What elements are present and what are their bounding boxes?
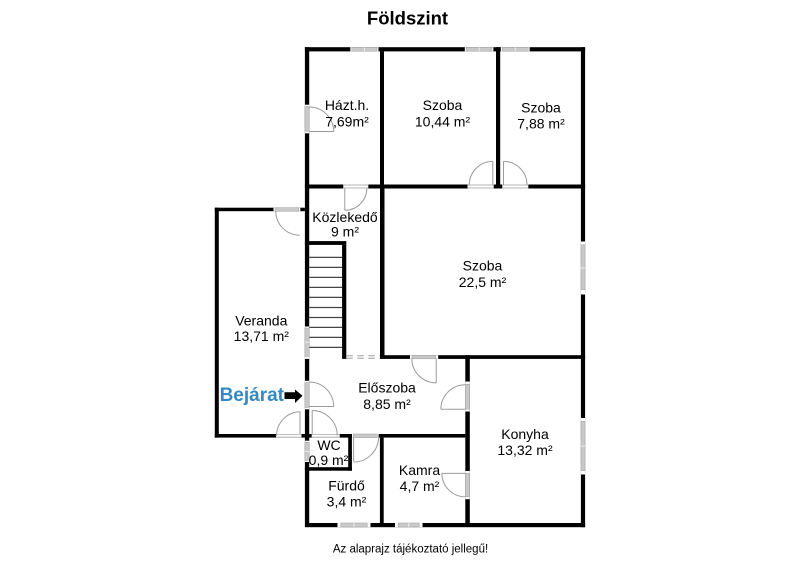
svg-text:9 m²: 9 m² [331,224,359,240]
svg-text:13,32 m²: 13,32 m² [497,442,553,458]
svg-text:WC: WC [317,437,340,453]
svg-text:Az alaprajz tájékoztató jelleg: Az alaprajz tájékoztató jellegű! [333,544,488,556]
svg-text:Bejárat: Bejárat [220,385,285,406]
svg-text:Konyha: Konyha [501,426,549,442]
svg-text:8,85 m²: 8,85 m² [363,396,411,412]
svg-text:Kamra: Kamra [399,462,440,478]
svg-text:Közlekedő: Közlekedő [312,209,378,225]
svg-text:3,4 m²: 3,4 m² [327,494,367,510]
svg-text:Házt.h.: Házt.h. [325,97,369,113]
svg-text:Földszint: Földszint [367,8,448,29]
svg-text:Veranda: Veranda [235,313,287,329]
svg-text:Fürdő: Fürdő [328,478,365,494]
svg-text:22,5 m²: 22,5 m² [459,274,507,290]
svg-text:10,44 m²: 10,44 m² [415,113,471,129]
svg-text:13,71 m²: 13,71 m² [234,328,290,344]
svg-text:Szoba: Szoba [463,258,503,274]
svg-text:0,9 m²: 0,9 m² [309,452,349,468]
svg-text:7,88 m²: 7,88 m² [517,115,565,131]
svg-text:Előszoba: Előszoba [358,380,416,396]
svg-text:Szoba: Szoba [521,100,561,116]
svg-text:4,7 m²: 4,7 m² [400,478,440,494]
svg-text:7,69m²: 7,69m² [325,114,369,130]
svg-text:Szoba: Szoba [423,97,463,113]
